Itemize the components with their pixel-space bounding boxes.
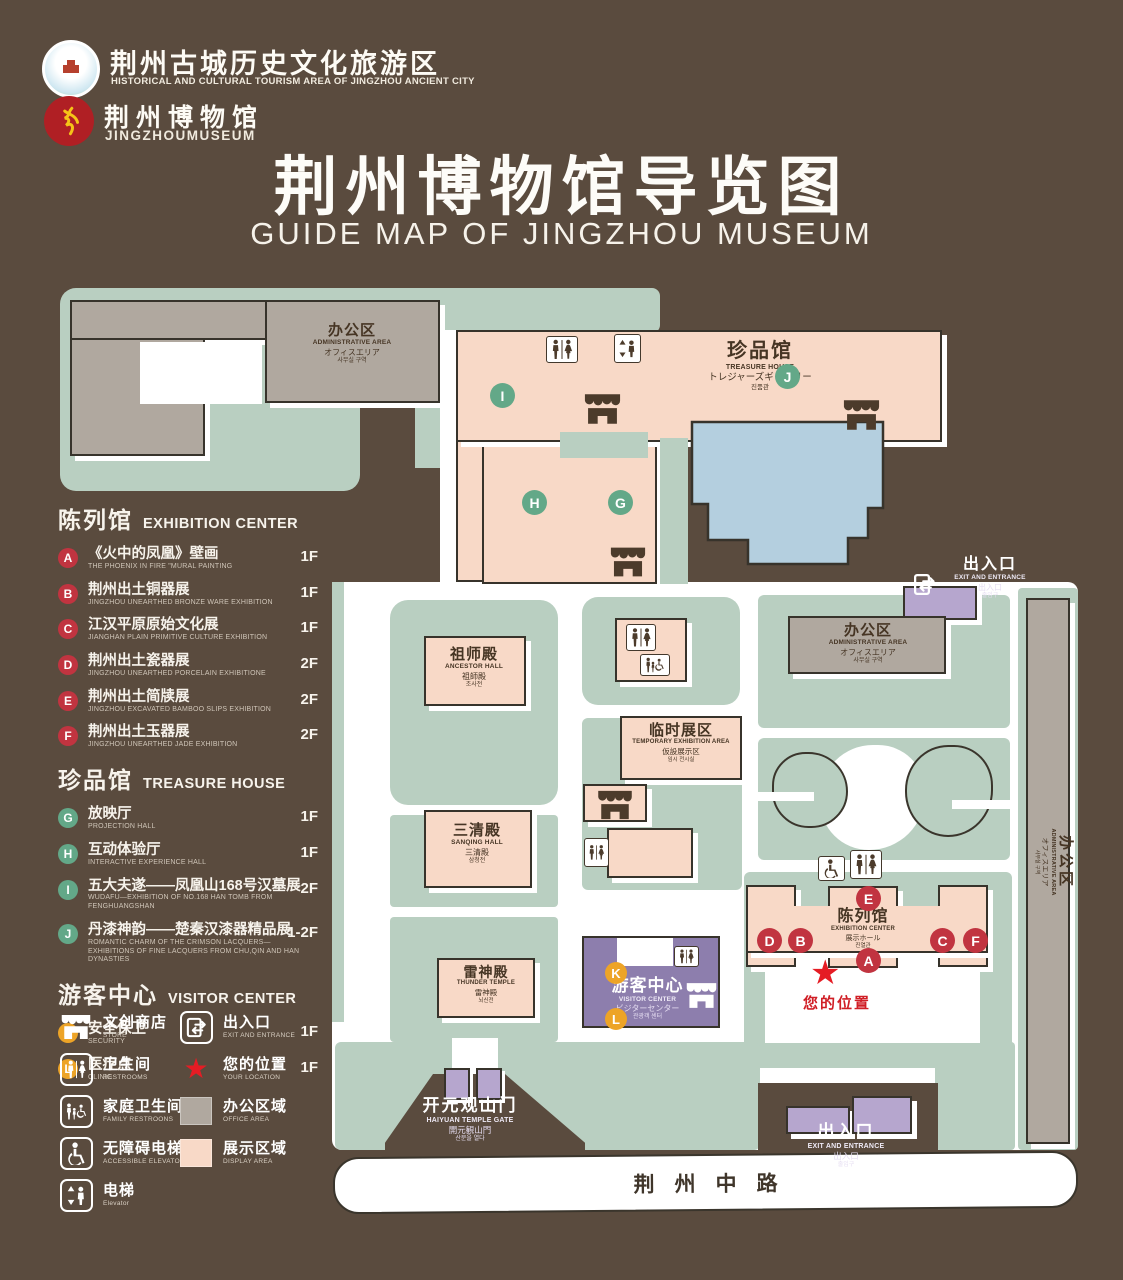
legend-panel: 陈列馆 EXHIBITION CENTERA 《火中的凤凰》壁画 THE PHO… [58, 497, 318, 1094]
page-title-cn: 荆州博物馆导览图 [0, 136, 1123, 228]
ancestor-hall-building [424, 636, 526, 706]
restroom-icon [674, 946, 699, 967]
pond [690, 420, 887, 567]
garden-blob-west [772, 752, 848, 828]
map-marker-H: H [522, 490, 547, 515]
item-name-en: JINGZHOU EXCAVATED BAMBOO SLIPS EXHIBITI… [88, 706, 303, 715]
item-marker: I [58, 880, 78, 900]
legend-item: F 荆州出土玉器展 JINGZHOU UNEARTHED JADE EXHIBI… [58, 725, 318, 750]
visitor-center-notch [617, 938, 673, 966]
item-marker: A [58, 548, 78, 568]
legend-item: D 荆州出土瓷器展 JINGZHOU UNEARTHED PORCELAIN E… [58, 654, 318, 679]
garden-blob-east [905, 745, 993, 837]
legend-symbol-accessible: 无障碍电梯ACCESSIBLE ELEVATOR [58, 1134, 185, 1172]
item-marker: D [58, 655, 78, 675]
legend-item: A 《火中的凤凰》壁画 THE PHOENIX IN FIRE "MURAL P… [58, 547, 318, 572]
elevator-icon [60, 1179, 93, 1212]
exit-icon [180, 1011, 213, 1044]
legend-item: C 江汉平原原始文化展 JIANGHAN PLAIN PRIMITIVE CUL… [58, 618, 318, 643]
item-marker: J [58, 924, 78, 944]
legend-item: I 五大夫遂——凤凰山168号汉墓展 WUDAFU—EXHIBITION OF … [58, 879, 318, 912]
grounds-west-edge [332, 582, 344, 1022]
section-title-en: EXHIBITION CENTER [143, 516, 298, 532]
item-floor: 1F [300, 1059, 318, 1076]
accessible-icon [60, 1137, 93, 1170]
temporary-exhibition-building [620, 716, 742, 780]
gate-glyph-icon [63, 65, 79, 73]
family-icon [60, 1095, 93, 1128]
item-marker: G [58, 808, 78, 828]
item-name-cn: 《火中的凤凰》壁画 [88, 547, 318, 563]
item-marker: E [58, 691, 78, 711]
legend-item: B 荆州出土铜器展 JINGZHOU UNEARTHED BRONZE WARE… [58, 583, 318, 608]
map-marker-L: L [605, 1008, 627, 1030]
legend-symbol-office: 办公区域OFFICE AREA [178, 1092, 287, 1130]
guide-map-poster: 荆州古城历史文化旅游区 HISTORICAL AND CULTURAL TOUR… [0, 0, 1123, 1280]
road-name: 荆州中路 [613, 1167, 797, 1199]
legend-section-header: 陈列馆 EXHIBITION CENTER [58, 501, 318, 535]
item-name-cn: 荆州出土瓷器展 [88, 654, 318, 670]
item-name-en: PROJECTION HALL [88, 823, 303, 832]
your-location-label: 您的位置 [772, 992, 902, 1013]
store-icon [843, 398, 880, 432]
family-restroom-icon [640, 654, 670, 676]
item-floor: 2F [300, 726, 318, 743]
legend-symbol-elevator: 电梯Elevator [58, 1176, 135, 1214]
store-icon [686, 982, 717, 1009]
store-icon [61, 1014, 91, 1040]
item-floor: 1F [300, 808, 318, 825]
legend-item: J 丹漆神韵——楚秦汉漆器精品展 ROMANTIC CHARM OF THE C… [58, 923, 318, 965]
item-name-en: ROMANTIC CHARM OF THE CRIMSON LACQUERS—E… [88, 939, 303, 965]
item-name-en: JINGZHOU UNEARTHED JADE EXHIBITION [88, 741, 303, 750]
item-name-cn: 荆州出土简牍展 [88, 690, 318, 706]
admin-nw-building-a [70, 300, 270, 340]
restroom-icon [584, 838, 609, 867]
item-name-cn: 放映厅 [88, 807, 318, 823]
treasure-inner-green-b [660, 438, 688, 584]
page-title-en: GUIDE MAP OF JINGZHOU MUSEUM [0, 216, 1123, 252]
gate-pillar-west [444, 1068, 470, 1100]
sanqing-hall-building [424, 810, 532, 888]
map-marker-I: I [490, 383, 515, 408]
legend-symbol-star: ★ 您的位置YOUR LOCATION [178, 1050, 287, 1088]
map-marker-C: C [930, 928, 955, 953]
legend-section-header: 珍品馆 TREASURE HOUSE [58, 761, 318, 795]
item-floor: 1-2F [287, 924, 318, 941]
item-name-en: JINGZHOU UNEARTHED PORCELAIN EXHIBITIONE [88, 670, 303, 679]
store-icon [610, 546, 646, 578]
wc-icon [60, 1053, 93, 1086]
exit-door-icon [912, 572, 937, 597]
legend-symbol-wc: 卫生间RESTROOMS [58, 1050, 151, 1088]
your-location-star-icon: ★ [810, 956, 840, 990]
gate-pillar-east [476, 1068, 502, 1100]
map-marker-G: G [608, 490, 633, 515]
admin-nw-courtyard [140, 342, 262, 404]
display-area-swatch [180, 1139, 212, 1167]
store-icon [596, 790, 634, 820]
temporary-lower-wing [607, 828, 693, 878]
legend-symbol-store: 文创商店STORE [58, 1008, 167, 1046]
item-floor: 2F [300, 880, 318, 897]
map-marker-K: K [605, 962, 627, 984]
item-floor: 2F [300, 655, 318, 672]
store-icon [584, 392, 621, 426]
map-marker-E: E [856, 886, 881, 911]
admin-east-building [788, 616, 946, 674]
map-marker-F: F [963, 928, 988, 953]
item-name-en: JINGZHOU UNEARTHED BRONZE WARE EXHIBITIO… [88, 599, 303, 608]
item-marker: B [58, 584, 78, 604]
admin-strip-building [1026, 598, 1070, 1144]
legend-symbol-exit: 出入口EXIT AND ENTRANCE [178, 1008, 295, 1046]
item-floor: 1F [300, 844, 318, 861]
treasure-inner-green-a [560, 432, 648, 458]
section-title-en: VISITOR CENTER [168, 991, 296, 1007]
section-title-cn: 陈列馆 [58, 501, 133, 535]
south-exit-building-a [786, 1106, 850, 1134]
item-name-cn: 江汉平原原始文化展 [88, 618, 318, 634]
map-marker-D: D [757, 928, 782, 953]
phoenix-icon [52, 104, 86, 138]
item-floor: 2F [300, 691, 318, 708]
map-marker-B: B [788, 928, 813, 953]
restroom-icon [546, 336, 578, 363]
item-marker: F [58, 726, 78, 746]
item-floor: 1F [300, 1023, 318, 1040]
tourism-area-logo-icon [42, 40, 100, 98]
legend-symbol-family: 家庭卫生间FAMILY RESTROONS [58, 1092, 183, 1130]
item-name-cn: 荆州出土玉器展 [88, 725, 318, 741]
restroom-icon [850, 850, 882, 879]
item-name-cn: 荆州出土铜器展 [88, 583, 318, 599]
road: 荆州中路 [333, 1151, 1078, 1214]
item-name-cn: 五大夫遂——凤凰山168号汉墓展 [88, 879, 318, 895]
map-marker-J: J [775, 364, 800, 389]
item-name-en: THE PHOENIX IN FIRE "MURAL PAINTING [88, 563, 303, 572]
admin-nw-building-c [265, 300, 440, 403]
legend-section-header: 游客中心 VISITOR CENTER [58, 976, 318, 1010]
item-floor: 1F [300, 619, 318, 636]
garden-path-east [952, 800, 1010, 809]
grounds-south-east [935, 1042, 1015, 1150]
item-name-cn: 丹漆神韵——楚秦汉漆器精品展 [88, 923, 318, 939]
accessible-icon [818, 856, 845, 881]
legend-item: H 互动体验厅 INTERACTIVE EXPERIENCE HALL 1F [58, 843, 318, 868]
item-marker: H [58, 844, 78, 864]
section-title-cn: 游客中心 [58, 976, 158, 1010]
item-name-cn: 互动体验厅 [88, 843, 318, 859]
restroom-icon [626, 624, 656, 651]
garden-path-west [758, 792, 814, 801]
south-exit-building-b [852, 1096, 912, 1134]
elevator-icon [614, 334, 641, 363]
map-marker-A: A [856, 948, 881, 973]
item-floor: 1F [300, 584, 318, 601]
legend-item: E 荆州出土简牍展 JINGZHOU EXCAVATED BAMBOO SLIP… [58, 690, 318, 715]
thunder-temple-building [437, 958, 535, 1018]
office-area-swatch [180, 1097, 212, 1125]
item-name-en: INTERACTIVE EXPERIENCE HALL [88, 859, 303, 868]
legend-symbol-display: 展示区域DISPLAY AREA [178, 1134, 287, 1172]
item-marker: C [58, 619, 78, 639]
section-title-en: TREASURE HOUSE [143, 776, 285, 792]
item-name-en: JIANGHAN PLAIN PRIMITIVE CULTURE EXHIBIT… [88, 634, 303, 643]
legend-item: G 放映厅 PROJECTION HALL 1F [58, 807, 318, 832]
section-title-cn: 珍品馆 [58, 761, 133, 795]
your-location-star-icon: ★ [183, 1055, 208, 1083]
item-name-en: WUDAFU—EXHIBITION OF NO.168 HAN TOMB FRO… [88, 894, 303, 912]
tourism-area-name-en: HISTORICAL AND CULTURAL TOURISM AREA OF … [111, 76, 475, 87]
item-floor: 1F [300, 548, 318, 565]
